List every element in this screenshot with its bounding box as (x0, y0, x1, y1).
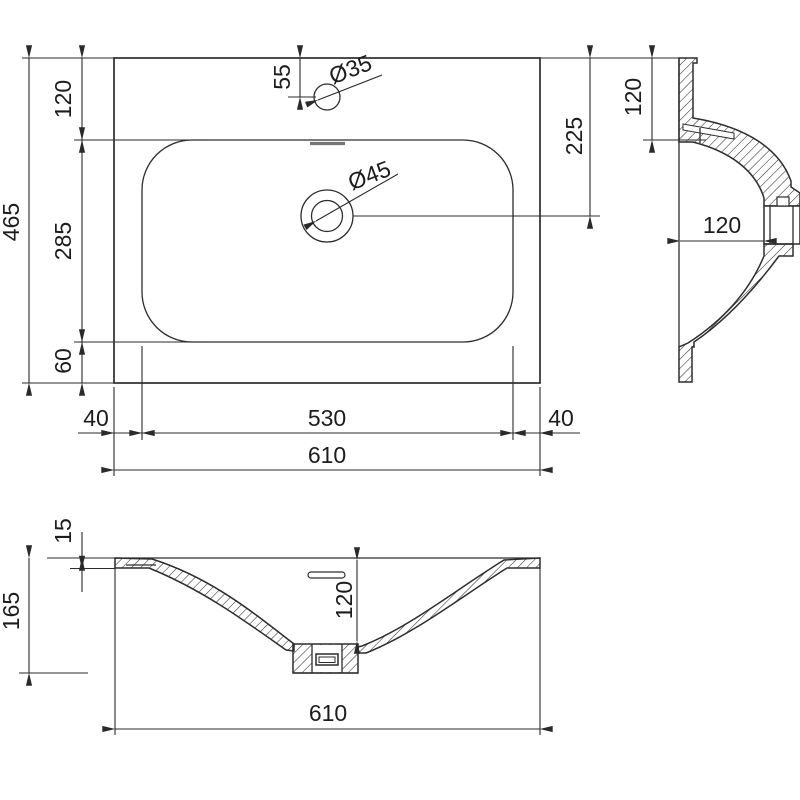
countertop-outline (114, 58, 540, 383)
front-view-extension-lines (19, 558, 540, 735)
dim-label-margin-right: 40 (548, 405, 574, 431)
dim-label-rim-front: 60 (50, 348, 76, 374)
dim-label-total-width: 610 (308, 442, 346, 468)
front-left-shell (115, 558, 294, 651)
dim-label-depth-total: 465 (0, 203, 24, 241)
technical-drawing-page: 465 120 285 60 55 225 Ø35 Ø45 40 530 40 … (0, 0, 800, 800)
dim-label-drain-offset: 225 (561, 117, 587, 155)
dim-label-drain-diameter: Ø45 (344, 155, 394, 195)
front-section-view (115, 558, 540, 673)
dim-label-side-rim-width: 120 (620, 78, 646, 116)
side-drain-notch (777, 197, 789, 206)
drain-hole (312, 201, 343, 232)
dim-label-faucet-offset: 55 (269, 64, 295, 90)
front-view-dimensions: 15 165 120 610 (0, 518, 540, 729)
dim-label-front-total-width: 610 (309, 700, 347, 726)
side-lower-shell (679, 244, 793, 382)
dim-label-basin-depth: 285 (50, 222, 76, 260)
dim-label-side-bowl-depth: 120 (703, 212, 741, 238)
dim-label-rim-back: 120 (50, 80, 76, 118)
dim-label-basin-width: 530 (308, 405, 346, 431)
dim-label-slab-thickness: 15 (50, 518, 76, 544)
dim-label-total-height: 165 (0, 592, 24, 630)
drain-recess (301, 190, 353, 242)
dim-label-margin-left: 40 (83, 405, 109, 431)
top-view-labels: 465 120 285 60 55 225 Ø35 Ø45 40 530 40 … (0, 49, 587, 468)
front-overflow-slot (308, 572, 345, 578)
basin-outline (142, 140, 513, 342)
front-right-shell (358, 558, 540, 653)
dim-label-front-bowl-depth: 120 (331, 581, 357, 619)
dim-label-faucet-diameter: Ø35 (325, 49, 375, 89)
top-view (114, 58, 540, 383)
washbasin-drawing: 465 120 285 60 55 225 Ø35 Ø45 40 530 40 … (0, 0, 800, 800)
